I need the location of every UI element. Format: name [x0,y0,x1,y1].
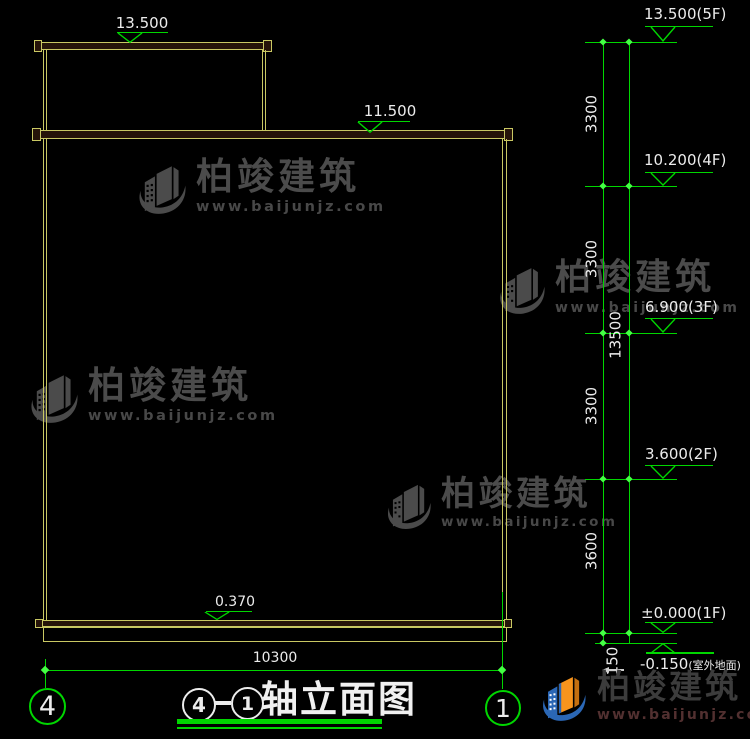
dim-text: 3300 [585,95,600,133]
dim-text: 3300 [585,387,600,425]
floor-elevation-label: 6.900(3F) [645,300,718,315]
site-logo-icon [536,670,588,726]
floor-elevation-label: 3.600(2F) [645,447,718,462]
watermark: 柏竣建筑 www.baijunjz.com [382,477,617,535]
tick-marker [599,639,606,646]
title-underline-thick [177,719,382,724]
site-logo-url: www.baijunjz.com [597,708,750,722]
tick-marker [599,329,606,336]
title-underline-thin [177,727,382,729]
axis-bubble-1: 1 [485,690,521,726]
tick-marker [599,629,606,636]
elevation-symbol-triangle [357,122,383,133]
watermark-logo-icon [382,477,432,535]
plinth-ledge [36,620,511,627]
site-logo: 柏竣建筑 www.baijunjz.com [536,670,750,726]
penthouse-wall-right [262,50,266,131]
title-dash [214,701,231,705]
watermark-brand: 柏竣建筑 [441,477,617,511]
site-logo-brand: 柏竣建筑 [597,670,750,703]
width-dim-text: 10300 [235,651,315,665]
drawing-title: 轴立面图 [261,681,417,718]
title-axis-circle-4: 4 [182,688,216,722]
roof-coping-end-left [32,128,41,141]
penthouse-wall-left [43,50,47,131]
elevation-symbol-triangle [650,319,676,333]
watermark-url: www.baijunjz.com [196,200,386,215]
dim-end-marker [41,666,49,674]
elevation-symbol-triangle [650,27,676,42]
penthouse-coping [35,42,271,50]
elevation-symbol-triangle [650,173,676,186]
elevation-symbol-triangle [117,33,143,43]
elevation-symbol-line [646,652,714,654]
dim-text-total: 13500 [609,311,624,359]
watermark: 柏竣建筑 www.baijunjz.com [25,367,278,429]
roof-coping [33,130,512,139]
cad-elevation-drawing: 柏竣建筑 www.baijunjz.com 柏竣建筑 www.baijunjz.… [0,0,750,739]
elevation-symbol-triangle [650,623,676,633]
main-wall-right [502,139,507,621]
tick-marker [625,329,632,336]
elevation-label: 11.500 [358,104,422,119]
title-axis-circle-1: 1 [231,687,264,720]
watermark-url: www.baijunjz.com [88,409,278,424]
watermark-brand: 柏竣建筑 [88,367,278,404]
watermark-logo-icon [133,158,187,220]
width-dimension-line [45,670,502,671]
tick-marker [625,629,632,636]
penthouse-coping-end-left [34,40,42,52]
watermark: 柏竣建筑 www.baijunjz.com [133,158,386,220]
elevation-label: 0.370 [204,595,266,609]
main-wall-left [43,139,47,621]
tick-marker [599,38,606,45]
tick-marker [599,182,606,189]
axis-bubble-4: 4 [29,688,66,725]
floor-elevation-label: 10.200(4F) [644,153,726,168]
tick-marker [625,475,632,482]
dim-text: 3600 [585,532,600,570]
watermark-brand: 柏竣建筑 [196,158,386,195]
plinth-ledge-end-left [35,619,43,628]
dim-text: 3300 [585,240,600,278]
watermark-url: www.baijunjz.com [441,516,617,530]
plinth-base [43,627,507,642]
floor-elevation-label: ±0.000(1F) [641,606,726,621]
watermark-logo-icon [25,367,79,429]
axis-extension-right [502,592,503,689]
elevation-label: 13.500 [110,16,174,31]
floor-elevation-label: 13.500(5F) [644,7,726,22]
dimension-chain-line [603,42,604,643]
elevation-symbol-triangle [204,612,230,620]
dim-end-marker [498,666,506,674]
dimension-total-line [629,42,630,643]
tick-marker [625,38,632,45]
elevation-symbol-triangle [650,466,676,479]
tick-marker [625,182,632,189]
